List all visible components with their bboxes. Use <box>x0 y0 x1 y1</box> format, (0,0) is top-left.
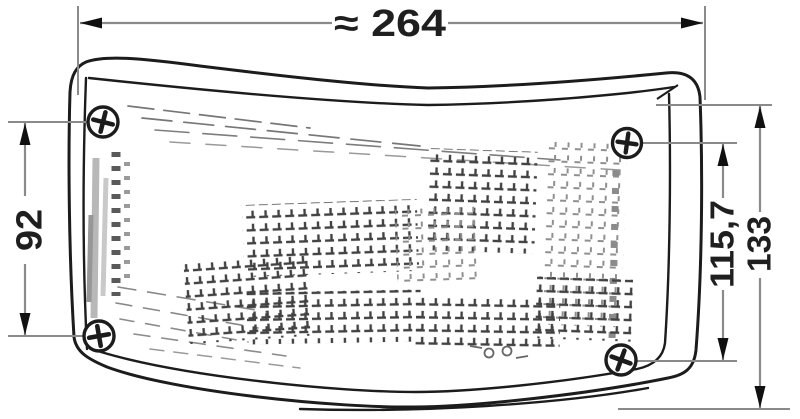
lamp-bezel-top <box>89 78 674 105</box>
shade-bar <box>103 178 106 296</box>
shade-bar <box>89 215 91 302</box>
arrow-down-icon <box>718 338 729 360</box>
phillips-screw-icon <box>84 321 114 351</box>
technical-drawing-page: ≈ 264 92 115,7 133 <box>0 0 800 419</box>
lamp-dimension-drawing: ≈ 264 92 115,7 133 <box>0 0 800 419</box>
lens-mark <box>503 347 512 356</box>
lens-streak <box>150 349 300 368</box>
lens-mark <box>516 356 528 358</box>
shade-bar <box>94 158 96 318</box>
lens-mark <box>470 346 482 348</box>
arrow-down-icon <box>755 386 766 408</box>
right-fixing-height-label: 115,7 <box>704 200 741 288</box>
overall-height-label: 133 <box>741 216 778 272</box>
phillips-screw-icon <box>606 345 636 375</box>
arrow-down-icon <box>20 313 31 335</box>
overall-width-label: ≈ 264 <box>334 3 446 45</box>
arrow-left-icon <box>80 18 102 29</box>
arrow-up-icon <box>755 106 766 128</box>
lamp-bezel-left <box>84 78 88 349</box>
left-fixing-height-label: 92 <box>9 209 50 251</box>
hatch-patch <box>535 276 633 341</box>
lens-hatching <box>183 137 633 358</box>
arrow-up-icon <box>20 123 31 145</box>
phillips-screw-icon <box>613 129 642 158</box>
lens-mark <box>485 349 494 358</box>
lens-small-marks <box>470 346 528 358</box>
hatch-patch <box>246 289 422 344</box>
lens-streak <box>128 106 310 128</box>
hatch-patch-light <box>395 205 482 284</box>
phillips-screw-icon <box>88 107 118 137</box>
arrow-up-icon <box>718 144 729 166</box>
arrow-right-icon <box>681 18 703 29</box>
